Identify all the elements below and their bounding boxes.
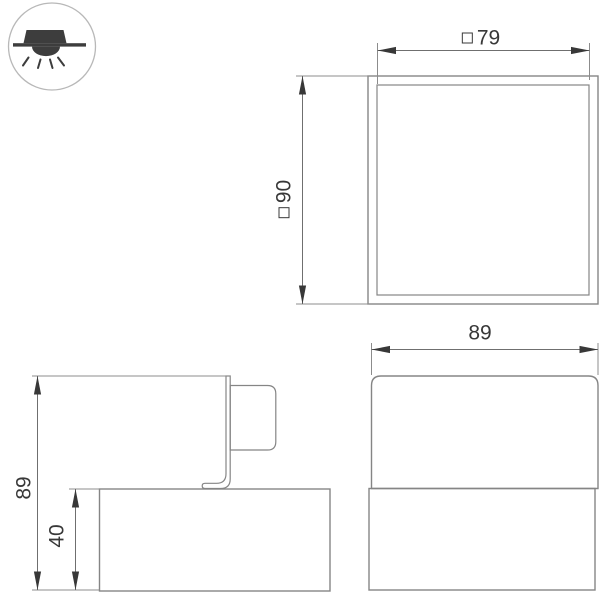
- top-view-inner-square: [377, 85, 589, 295]
- side-view-driver-box: [230, 386, 276, 451]
- arrow-right: [571, 47, 590, 54]
- side-view-body-height-label: 40: [47, 524, 68, 547]
- arrow-up: [299, 76, 306, 95]
- top-view-size-label: 90: [274, 180, 295, 218]
- top-view-size-dimension: [296, 76, 369, 304]
- square-symbol: [279, 207, 290, 218]
- arrow-up: [34, 376, 41, 395]
- front-view: [369, 376, 598, 590]
- fixture-body-shape: [24, 30, 67, 43]
- mount-type-badge: [9, 3, 96, 90]
- arrow-up: [72, 489, 79, 508]
- square-symbol: [462, 33, 473, 44]
- side-view-body-height-dimension: [69, 489, 100, 590]
- top-view-outer-square: [368, 76, 598, 304]
- side-view-body: [100, 489, 331, 591]
- dimension-value: 89: [468, 323, 491, 344]
- side-view-mounting-bracket: [202, 376, 230, 489]
- top-view-width-label: 79: [462, 28, 500, 49]
- dimension-value: 89: [14, 476, 35, 499]
- side-view-height-dimension: [32, 376, 230, 590]
- arrow-down: [299, 286, 306, 305]
- arrow-left: [378, 47, 397, 54]
- side-view-height-label: 89: [14, 476, 35, 499]
- arrow-down: [72, 572, 79, 591]
- side-view: [100, 376, 331, 591]
- dimension-value: 40: [47, 524, 68, 547]
- arrow-right: [580, 346, 599, 353]
- dimension-value: 79: [477, 28, 500, 49]
- ceiling-line-shape: [13, 43, 86, 46]
- arrow-left: [372, 346, 391, 353]
- front-view-lower-body: [369, 489, 595, 591]
- front-view-width-label: 89: [468, 323, 491, 344]
- front-view-width-dimension: [372, 343, 599, 375]
- top-view: [368, 76, 598, 304]
- technical-drawing-canvas: 79 90 89 40 89: [0, 0, 600, 592]
- dimension-value: 90: [274, 180, 295, 203]
- drawing-svg: [0, 0, 600, 592]
- arrow-down: [34, 572, 41, 591]
- front-view-upper-housing: [372, 376, 599, 489]
